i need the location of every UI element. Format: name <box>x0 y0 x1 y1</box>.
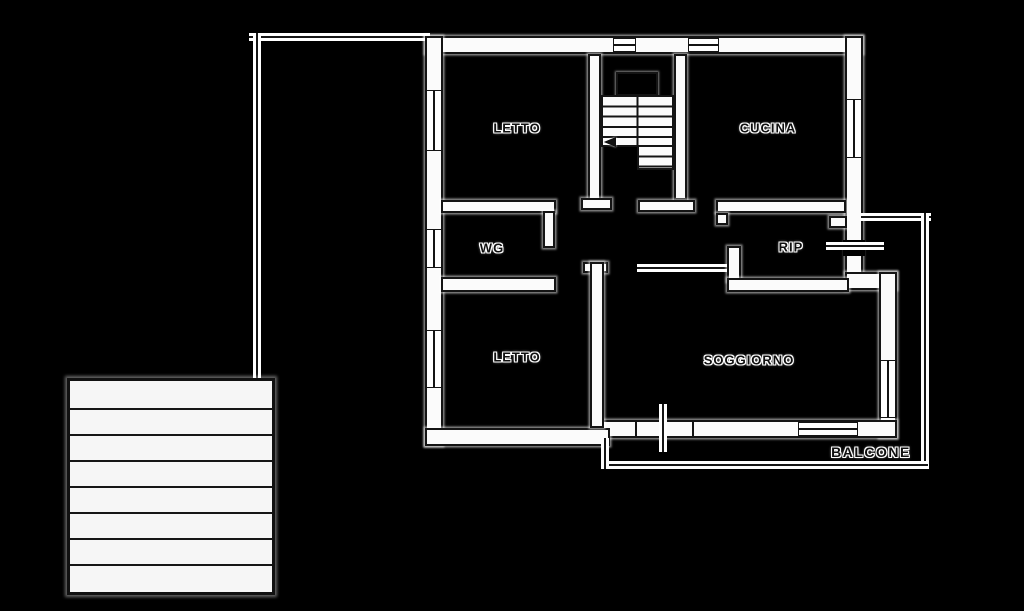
wall-letto2-east <box>590 262 604 428</box>
window-letto2 <box>426 330 442 388</box>
wall-wg-south <box>441 277 556 292</box>
boundary-line-horizontal <box>249 33 430 41</box>
window-letto1 <box>426 90 442 151</box>
wall-joint <box>692 421 694 437</box>
window-top-1 <box>613 38 636 52</box>
wall-bottom-letto <box>425 428 610 446</box>
door-leaf-rip <box>826 242 884 250</box>
stair-tread <box>70 512 272 514</box>
window-soggiorno-south <box>798 422 858 436</box>
balcony-edge-right <box>921 213 929 469</box>
room-label-soggiorno: SOGGIORNO <box>704 353 795 368</box>
boundary-line-vertical <box>253 33 261 381</box>
door-leaf-soggiorno <box>659 404 667 452</box>
wall-rip-south <box>727 278 849 292</box>
window-soggiorno-east <box>880 360 896 418</box>
window-wg <box>426 229 442 268</box>
stair-treads-lower <box>637 145 674 170</box>
wall-cucina-south-jamb <box>716 213 728 225</box>
room-label-wg: WG <box>480 241 504 256</box>
stair-tread <box>70 486 272 488</box>
wall-joint <box>635 421 637 437</box>
window-cucina <box>846 99 862 158</box>
balcony-edge-left <box>601 438 609 469</box>
stairwell-foot-east <box>638 200 695 212</box>
floor-plan: LETTO CUCINA WG RIP LETTO SOGGIORNO BALC… <box>0 0 1024 611</box>
stair-tread <box>70 460 272 462</box>
window-top-2 <box>688 38 719 52</box>
stair-landing <box>616 72 658 96</box>
stair-direction-arrow <box>604 137 634 147</box>
room-label-rip: RIP <box>779 240 804 255</box>
wall-cucina-south <box>716 200 846 213</box>
room-label-cucina: CUCINA <box>740 121 797 136</box>
room-label-letto-1: LETTO <box>493 121 540 136</box>
wall-rip-west <box>727 246 741 282</box>
stairwell-wall-west <box>588 54 601 200</box>
stairwell-wall-east <box>674 54 687 200</box>
stair-tread <box>70 434 272 436</box>
room-label-letto-2: LETTO <box>493 350 540 365</box>
room-label-balcone: BALCONE <box>831 444 911 460</box>
wall-wg-east-jamb <box>543 211 555 248</box>
stair-tread <box>70 408 272 410</box>
stair-tread <box>70 564 272 566</box>
wall-top <box>425 36 863 54</box>
stair-tread <box>70 538 272 540</box>
exterior-staircase <box>67 378 275 595</box>
door-jamb <box>829 216 847 228</box>
passage-line-soggiorno <box>637 264 729 272</box>
wall-wg-north <box>441 200 556 213</box>
balcony-edge-bottom <box>601 461 928 469</box>
stairwell-foot-west <box>581 198 612 210</box>
